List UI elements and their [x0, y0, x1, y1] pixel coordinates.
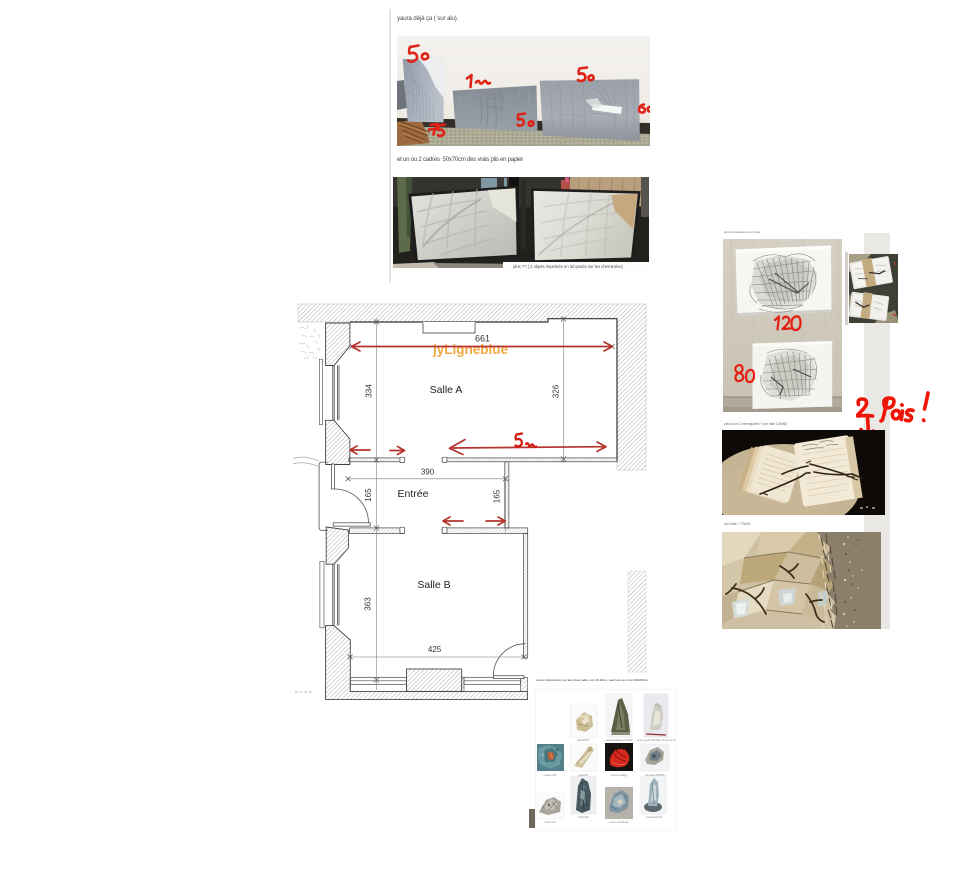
svg-text:s7slce-8e: s7slce-8e — [544, 820, 556, 824]
svg-text:Salle A: Salle A — [430, 384, 463, 396]
svg-text:Salle B: Salle B — [417, 579, 450, 591]
svg-text:scree-speed-58-58ap-2beec-ar-f: scree-speed-58-58ap-2beec-ar-f6 — [637, 738, 676, 742]
svg-text:Entrée: Entrée — [398, 488, 429, 500]
svg-text:mains-redlegg: mains-redlegg — [611, 773, 628, 777]
svg-text:363: 363 — [364, 597, 373, 611]
svg-text:damiass-558456: damiass-558456 — [645, 773, 665, 777]
svg-text:standspeer23: standspeer23 — [646, 815, 662, 819]
svg-text:425: 425 — [428, 645, 442, 654]
svg-text:jyLigneblue: jyLigneblue — [432, 342, 509, 357]
svg-text:serre-stone52sg: serre-stone52sg — [610, 820, 629, 824]
svg-text:165: 165 — [493, 489, 502, 503]
svg-text:334: 334 — [365, 384, 374, 398]
svg-text:165: 165 — [364, 488, 373, 502]
svg-text:326: 326 — [552, 384, 561, 398]
svg-text:390: 390 — [421, 467, 435, 476]
svg-text:77debe82: 77debe82 — [577, 815, 589, 819]
svg-text:quatz55: quatz55 — [578, 773, 588, 777]
svg-text:niveau-e46: niveau-e46 — [544, 773, 557, 777]
svg-text:scraps4blade3-metal67: scraps4blade3-metal67 — [606, 738, 634, 742]
svg-text:aaaal2638: aaaal2638 — [577, 738, 590, 742]
